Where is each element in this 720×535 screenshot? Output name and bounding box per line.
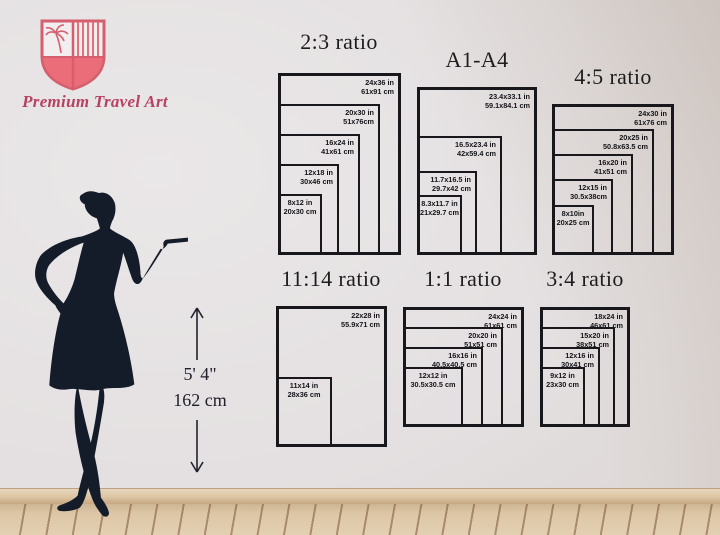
size-box: 11x14 in28x36 cm — [276, 377, 332, 447]
size-box: 9x12 in23x30 cm — [540, 367, 585, 427]
size-box: 8x12 in20x30 cm — [278, 194, 322, 255]
ratio-group-11-14: 11:14 ratio 22x28 in55.9x71 cm 11x14 in2… — [276, 306, 387, 447]
ratio-group-a1-a4: A1-A4 23.4x33.1 in59.1x84.1 cm 16.5x23.4… — [417, 87, 537, 255]
group-title: 4:5 ratio — [528, 64, 698, 90]
brand-name: Premium Travel Art — [10, 92, 180, 112]
height-metric: 162 cm — [160, 390, 240, 411]
arrow-up-icon — [189, 306, 205, 360]
size-box: 8.3x11.7 in21x29.7 cm — [417, 195, 462, 255]
size-box: 12x12 in30.5x30.5 cm — [403, 367, 463, 427]
group-title: 3:4 ratio — [500, 266, 670, 292]
ratio-group-4-5: 4:5 ratio 24x30 in61x76 cm 20x25 in50.8x… — [552, 104, 674, 255]
brand-logo: Premium Travel Art — [10, 18, 190, 118]
shield-crest-icon — [38, 18, 108, 92]
size-box: 8x10in20x25 cm — [552, 205, 594, 255]
height-marker: 5' 4" 162 cm — [160, 300, 240, 480]
arrow-down-icon — [189, 420, 205, 474]
ratio-group-2-3: 2:3 ratio 24x36 in61x91 cm 20x30 in51x76… — [278, 73, 401, 255]
height-imperial: 5' 4" — [160, 364, 240, 385]
size-guide-scene: Premium Travel Art 5' 4" 162 cm 2:3 rati… — [0, 0, 720, 535]
ratio-group-3-4: 3:4 ratio 18x24 in46x61 cm 15x20 in38x51… — [540, 307, 630, 427]
ratio-group-1-1: 1:1 ratio 24x24 in61x61 cm 20x20 in51x51… — [403, 307, 524, 427]
